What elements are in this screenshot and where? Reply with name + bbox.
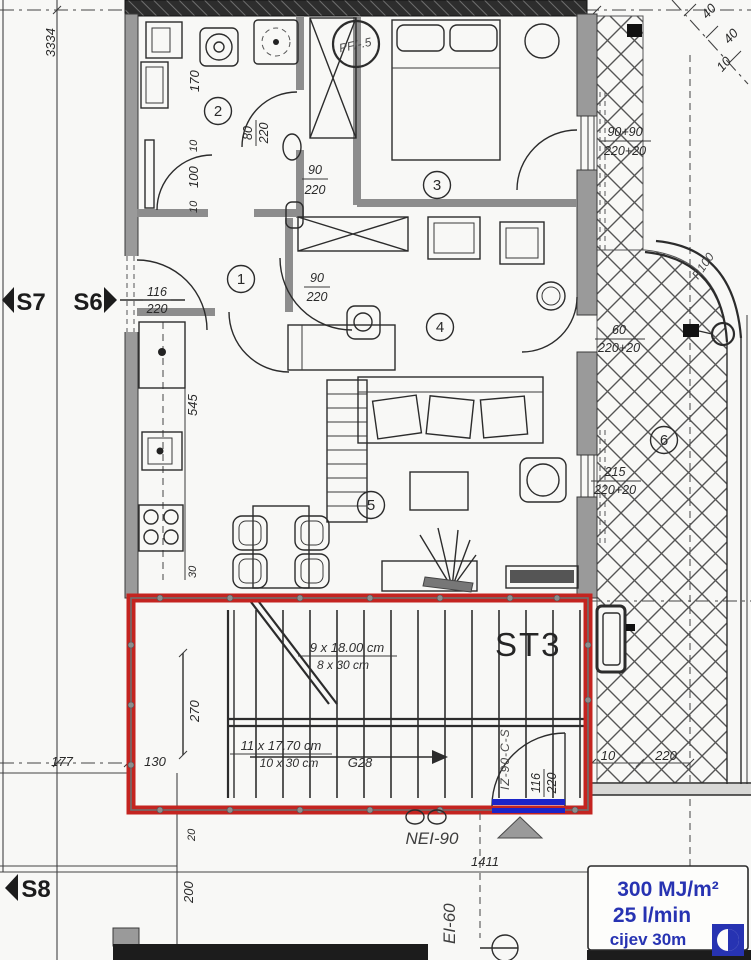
stair-door-spec: IZ-90-C-S xyxy=(498,728,512,790)
fireload-line3: cijev 30m xyxy=(610,930,687,949)
door-entry-label: 116 220 xyxy=(143,285,171,316)
room-label-3: 3 xyxy=(433,177,441,194)
svg-text:60: 60 xyxy=(612,323,626,337)
kitchen-door-arc xyxy=(157,155,212,210)
svg-text:220: 220 xyxy=(545,773,559,795)
dim-170: 170 xyxy=(187,70,202,92)
shelf xyxy=(145,140,154,208)
dim-270: 270 xyxy=(187,700,202,723)
boiler xyxy=(146,22,182,58)
floorplan-page: 3334 170 10 100 10 545 30 270 20 200 177… xyxy=(0,0,751,960)
sofa-chaise xyxy=(327,380,367,522)
s6-arrow-icon xyxy=(104,287,117,313)
dim-10d: 10 xyxy=(713,53,734,74)
fireload-line1: 300 MJ/m² xyxy=(617,878,719,901)
svg-text:220: 220 xyxy=(146,302,168,316)
stair-flight2-risers: 11 x 17.70 cm xyxy=(241,738,322,753)
exit-marker-triangle xyxy=(498,817,542,838)
dim-220t: 220 xyxy=(654,748,677,763)
stair-name: ST3 xyxy=(495,626,562,663)
desk-chair xyxy=(347,306,380,339)
door-hall-a-label: 90 220 xyxy=(302,163,328,197)
stair-flight1-risers: 9 x 18.00 cm xyxy=(310,640,385,655)
svg-text:220+20: 220+20 xyxy=(603,144,646,158)
room-label-6: 6 xyxy=(660,432,668,449)
dim-10b: 10 xyxy=(188,200,200,213)
bottom-band-left xyxy=(113,944,428,960)
dim-10t: 10 xyxy=(601,748,616,763)
wall-stub xyxy=(113,928,139,946)
hydrant-icon xyxy=(712,924,744,956)
dim-177: 177 xyxy=(51,754,73,769)
svg-text:90+90: 90+90 xyxy=(607,125,642,139)
section-s8: S8 xyxy=(21,876,50,903)
room-label-2: 2 xyxy=(214,103,222,120)
dim-1411: 1411 xyxy=(471,854,499,869)
svg-text:90: 90 xyxy=(310,271,324,285)
s8-arrow-icon xyxy=(5,874,18,901)
svg-text:90: 90 xyxy=(308,163,322,177)
dim-40a: 40 xyxy=(698,0,719,21)
dim-30: 30 xyxy=(187,565,199,578)
door-bath-label: 80 220 xyxy=(241,120,271,146)
top-section-band xyxy=(125,0,587,16)
washbasin xyxy=(283,134,301,160)
svg-text:116: 116 xyxy=(147,285,167,299)
double-bed xyxy=(392,20,500,160)
svg-text:220: 220 xyxy=(306,290,328,304)
fridge xyxy=(141,62,168,108)
side-table xyxy=(525,24,559,58)
dim-130: 130 xyxy=(144,754,166,769)
column-top xyxy=(627,24,642,37)
window-3-glazing xyxy=(581,455,594,497)
svg-text:220: 220 xyxy=(304,183,326,197)
dim-20: 20 xyxy=(186,828,198,842)
room-label-5: 5 xyxy=(367,497,375,514)
svg-text:116: 116 xyxy=(529,773,543,793)
window-1-glazing xyxy=(581,116,594,170)
stair-flight2-treads: 10 x 30 cm xyxy=(260,756,319,770)
fire-wall-rating: NEI-90 xyxy=(406,829,459,848)
dining-chairs xyxy=(233,516,329,588)
fire-shaft-rating: EI-60 xyxy=(440,903,459,944)
svg-text:80: 80 xyxy=(241,126,255,140)
desk xyxy=(288,325,395,370)
door-hall-b-label: 90 220 xyxy=(304,271,330,304)
stair-flight1-treads: 8 x 30 cm xyxy=(317,658,369,672)
dim-200: 200 xyxy=(181,881,196,904)
dim-40b: 40 xyxy=(720,25,741,46)
dim-3334: 3334 xyxy=(43,28,58,57)
fireload-line2: 25 l/min xyxy=(613,904,691,927)
s7-arrow-icon xyxy=(2,287,14,313)
svg-text:220+20: 220+20 xyxy=(597,341,640,355)
svg-text:220+20: 220+20 xyxy=(593,483,636,497)
room-label-4: 4 xyxy=(436,319,444,336)
section-s7: S7 xyxy=(16,289,45,316)
dim-545: 545 xyxy=(185,394,200,416)
svg-text:215: 215 xyxy=(604,465,626,479)
bedroom-balcony-door-arc xyxy=(517,130,577,190)
door-stair-label: 116 220 xyxy=(529,769,559,797)
plant-2 xyxy=(420,528,476,592)
stair-code: G28 xyxy=(348,755,373,770)
stool xyxy=(537,282,565,310)
room-label-1: 1 xyxy=(237,271,245,288)
svg-text:220: 220 xyxy=(257,123,271,145)
dim-100: 100 xyxy=(186,166,201,188)
section-s6: S6 xyxy=(73,289,102,316)
coffee-table xyxy=(410,472,468,510)
column-mid xyxy=(683,324,699,337)
floorplan-canvas: 3334 170 10 100 10 545 30 270 20 200 177… xyxy=(0,0,751,960)
exit-threshold-bar xyxy=(492,799,565,805)
hall-door-arc xyxy=(229,312,289,372)
dim-10a: 10 xyxy=(188,139,200,152)
sofa xyxy=(358,377,543,443)
